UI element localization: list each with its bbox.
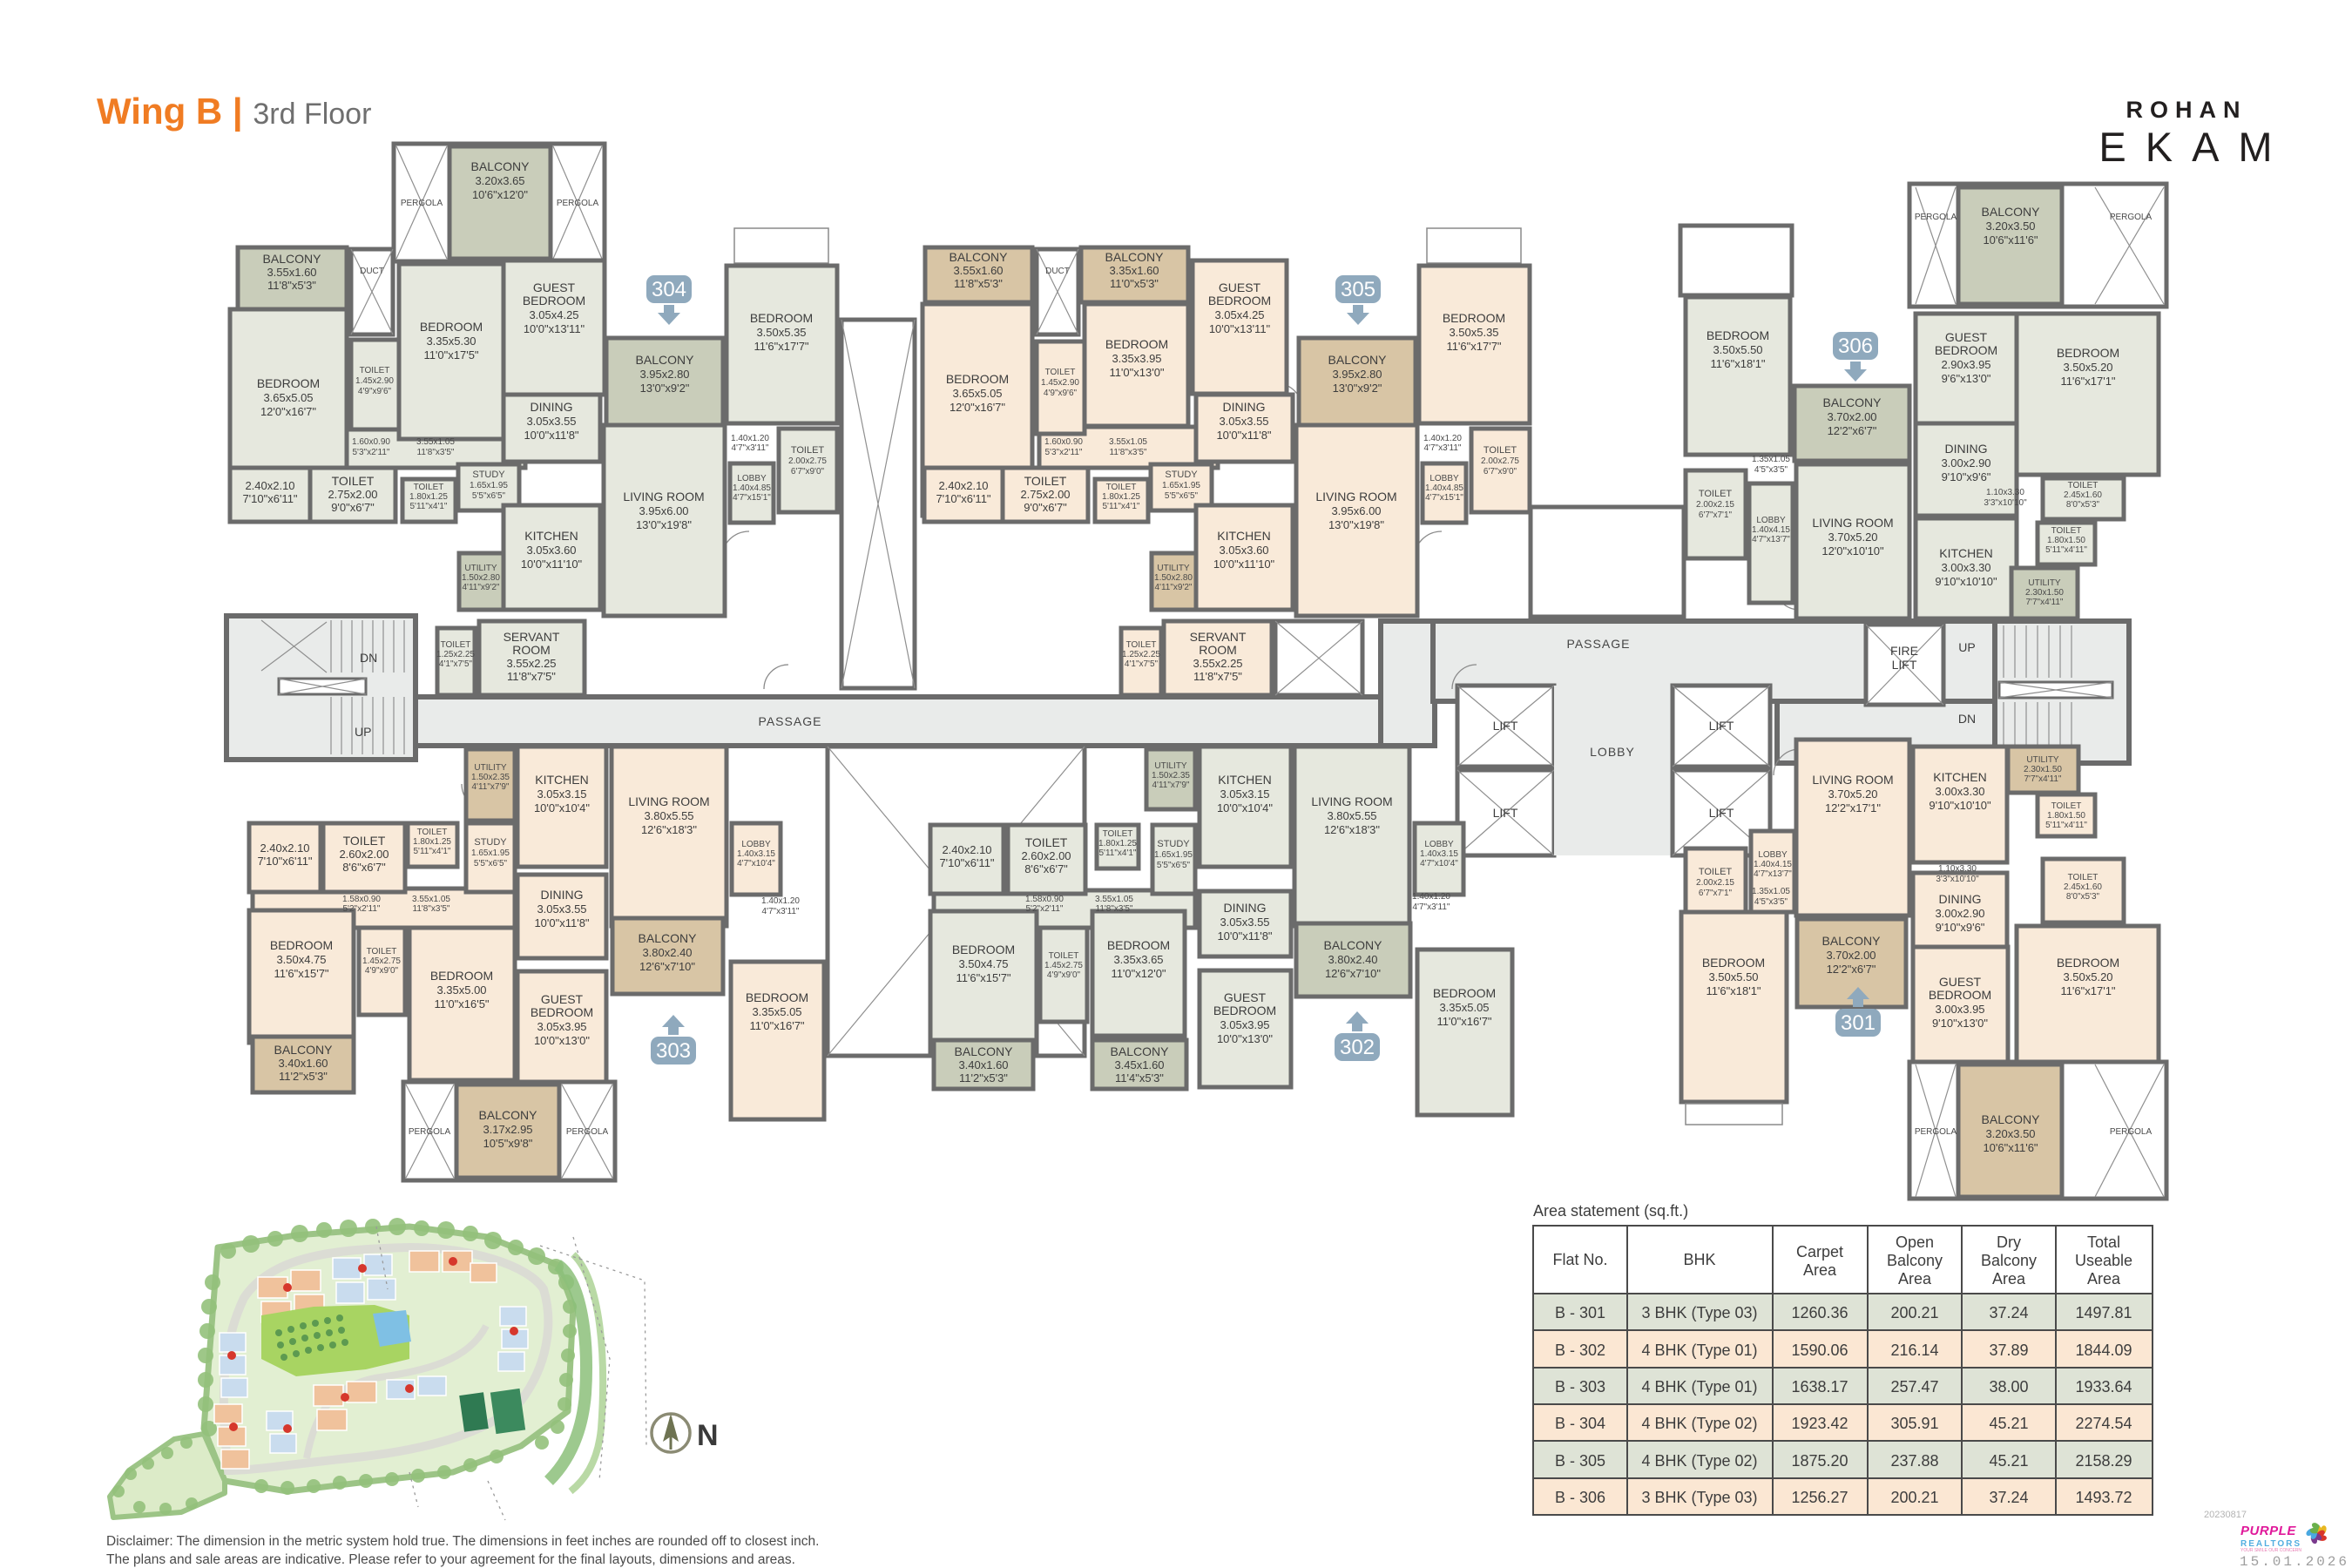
- svg-text:LIVING ROOM: LIVING ROOM: [628, 794, 709, 808]
- svg-text:5'3"x2'11": 5'3"x2'11": [353, 448, 390, 457]
- svg-text:5'2"x2'11": 5'2"x2'11": [343, 904, 381, 914]
- svg-text:5'11"x4'11": 5'11"x4'11": [2045, 821, 2087, 830]
- svg-text:1.25x2.25: 1.25x2.25: [1122, 650, 1160, 659]
- svg-text:PASSAGE: PASSAGE: [1567, 637, 1631, 651]
- svg-text:4 BHK (Type 01): 4 BHK (Type 01): [1641, 1342, 1757, 1359]
- svg-text:3.55x1.05: 3.55x1.05: [1095, 895, 1133, 904]
- svg-text:Total: Total: [2087, 1233, 2120, 1251]
- svg-text:37.89: 37.89: [1989, 1342, 2028, 1359]
- svg-text:11'2"x5'3": 11'2"x5'3": [959, 1071, 1008, 1085]
- svg-text:BALCONY: BALCONY: [1324, 938, 1383, 952]
- svg-text:1.65x1.95: 1.65x1.95: [1162, 481, 1200, 490]
- svg-text:37.24: 37.24: [1989, 1489, 2028, 1506]
- svg-text:BEDROOM: BEDROOM: [1929, 988, 1991, 1002]
- svg-text:7'10"x6'11": 7'10"x6'11": [242, 492, 297, 505]
- svg-text:11'6"x15'7": 11'6"x15'7": [274, 967, 328, 980]
- svg-text:12'2"x17'1": 12'2"x17'1": [1825, 801, 1881, 814]
- svg-text:UTILITY: UTILITY: [1154, 761, 1187, 771]
- svg-text:12'0"x16'7": 12'0"x16'7": [260, 405, 316, 418]
- svg-text:BEDROOM: BEDROOM: [420, 320, 483, 334]
- svg-text:PERGOLA: PERGOLA: [2110, 1127, 2153, 1137]
- svg-text:LOBBY: LOBBY: [737, 474, 767, 483]
- svg-text:STUDY: STUDY: [474, 837, 507, 848]
- svg-text:3.95x6.00: 3.95x6.00: [639, 504, 688, 517]
- svg-text:10'0"x10'4": 10'0"x10'4": [534, 801, 590, 814]
- svg-text:BEDROOM: BEDROOM: [2057, 956, 2119, 970]
- svg-text:LOBBY: LOBBY: [1424, 840, 1454, 849]
- svg-text:1.40x1.20: 1.40x1.20: [1412, 892, 1450, 902]
- svg-text:BALCONY: BALCONY: [263, 252, 322, 266]
- svg-text:BEDROOM: BEDROOM: [2057, 346, 2119, 360]
- svg-text:10'0"x11'8": 10'0"x11'8": [1217, 929, 1272, 943]
- svg-text:UP: UP: [355, 725, 371, 739]
- svg-text:3.50x5.35: 3.50x5.35: [1449, 326, 1498, 339]
- svg-text:Open: Open: [1896, 1233, 1934, 1251]
- svg-text:3.70x2.00: 3.70x2.00: [1826, 949, 1876, 962]
- svg-text:3.00x2.90: 3.00x2.90: [1935, 907, 1984, 920]
- svg-text:20230817: 20230817: [2204, 1510, 2247, 1520]
- svg-text:2.00x2.15: 2.00x2.15: [1696, 500, 1734, 510]
- svg-text:10'0"x11'8": 10'0"x11'8": [534, 916, 589, 929]
- svg-text:3.00x3.95: 3.00x3.95: [1935, 1003, 1984, 1016]
- svg-text:13'0"x19'8": 13'0"x19'8": [1328, 518, 1384, 531]
- svg-text:4'1"x7'5": 4'1"x7'5": [1125, 659, 1159, 669]
- svg-text:2.40x2.10: 2.40x2.10: [260, 841, 309, 855]
- svg-text:3.65x5.05: 3.65x5.05: [263, 391, 313, 404]
- svg-text:ROHAN: ROHAN: [2126, 97, 2247, 123]
- svg-text:TOILET: TOILET: [343, 834, 386, 848]
- svg-text:10'0"x10'4": 10'0"x10'4": [1217, 801, 1273, 814]
- svg-text:11'8"x3'5": 11'8"x3'5": [1110, 448, 1147, 457]
- svg-text:LIVING ROOM: LIVING ROOM: [623, 490, 704, 504]
- svg-text:10'5"x9'8": 10'5"x9'8": [483, 1137, 533, 1150]
- svg-text:2.60x2.00: 2.60x2.00: [1021, 849, 1071, 862]
- svg-text:BEDROOM: BEDROOM: [946, 372, 1009, 386]
- svg-text:PERGOLA: PERGOLA: [1915, 213, 1957, 222]
- svg-text:10'0"x13'11": 10'0"x13'11": [1209, 322, 1271, 335]
- svg-text:2.40x2.10: 2.40x2.10: [942, 843, 991, 856]
- svg-text:1875.20: 1875.20: [1791, 1452, 1848, 1470]
- svg-text:LIFT: LIFT: [1892, 658, 1917, 672]
- svg-text:3'3"x10'10": 3'3"x10'10": [1984, 498, 2027, 508]
- svg-text:13'0"x9'2": 13'0"x9'2": [640, 382, 690, 395]
- svg-text:3.00x2.90: 3.00x2.90: [1941, 456, 1990, 470]
- svg-text:TOILET: TOILET: [2068, 481, 2099, 490]
- svg-text:11'0"x12'0": 11'0"x12'0": [1111, 967, 1166, 980]
- svg-text:1.40x1.20: 1.40x1.20: [761, 896, 800, 906]
- svg-text:3.70x5.20: 3.70x5.20: [1828, 531, 1877, 544]
- svg-text:4'7"x10'4": 4'7"x10'4": [737, 859, 775, 868]
- svg-text:1.50x2.35: 1.50x2.35: [1152, 771, 1190, 781]
- svg-text:2.40x2.10: 2.40x2.10: [938, 479, 988, 492]
- svg-text:305.91: 305.91: [1890, 1415, 1938, 1432]
- svg-text:4'7"x15'1": 4'7"x15'1": [733, 493, 771, 503]
- svg-text:UTILITY: UTILITY: [2026, 755, 2059, 765]
- svg-text:11'2"x5'3": 11'2"x5'3": [279, 1070, 328, 1083]
- svg-text:4'9"x9'0": 4'9"x9'0": [365, 966, 399, 976]
- svg-text:1844.09: 1844.09: [2075, 1342, 2132, 1359]
- svg-text:1.25x2.25: 1.25x2.25: [436, 650, 475, 659]
- svg-text:BEDROOM: BEDROOM: [750, 311, 813, 325]
- svg-text:3.35x3.65: 3.35x3.65: [1113, 953, 1163, 966]
- svg-text:10'0"x11'10": 10'0"x11'10": [1213, 558, 1275, 571]
- svg-text:Dry: Dry: [1997, 1233, 2021, 1251]
- svg-text:1.35x1.05: 1.35x1.05: [1752, 887, 1790, 896]
- svg-text:3.00x3.30: 3.00x3.30: [1941, 561, 1990, 574]
- svg-text:BALCONY: BALCONY: [955, 1044, 1014, 1058]
- svg-text:TOILET: TOILET: [791, 445, 825, 456]
- svg-text:4'9"x9'6": 4'9"x9'6": [358, 387, 392, 396]
- svg-text:TOILET: TOILET: [1103, 829, 1133, 839]
- svg-text:1.58x0.90: 1.58x0.90: [342, 895, 381, 904]
- svg-text:2158.29: 2158.29: [2075, 1452, 2132, 1470]
- svg-text:12'2"x6'7": 12'2"x6'7": [1827, 963, 1876, 976]
- svg-text:BEDROOM: BEDROOM: [531, 1005, 593, 1019]
- svg-text:BALCONY: BALCONY: [1982, 205, 2041, 219]
- svg-text:11'6"x17'1": 11'6"x17'1": [2060, 375, 2115, 388]
- svg-text:STUDY: STUDY: [1157, 839, 1190, 849]
- svg-text:B - 303: B - 303: [1555, 1378, 1605, 1396]
- svg-text:3.00x3.30: 3.00x3.30: [1935, 785, 1984, 798]
- svg-text:2.00x2.15: 2.00x2.15: [1696, 878, 1734, 888]
- svg-text:3.55x1.05: 3.55x1.05: [416, 437, 455, 447]
- svg-text:1638.17: 1638.17: [1791, 1378, 1848, 1396]
- svg-text:2.45x1.60: 2.45x1.60: [2064, 882, 2102, 892]
- svg-text:1590.06: 1590.06: [1791, 1342, 1848, 1359]
- svg-text:3.95x6.00: 3.95x6.00: [1331, 504, 1381, 517]
- svg-text:6'7"x9'0": 6'7"x9'0": [791, 467, 825, 476]
- svg-text:1.10x3.30: 1.10x3.30: [1986, 488, 2024, 497]
- svg-text:8'6"x6'7": 8'6"x6'7": [342, 861, 386, 874]
- svg-text:1.45x2.90: 1.45x2.90: [1041, 378, 1079, 388]
- svg-text:5'5"x6'5": 5'5"x6'5": [474, 859, 508, 868]
- svg-text:TOILET: TOILET: [360, 366, 390, 375]
- svg-text:1.80x1.25: 1.80x1.25: [409, 492, 448, 502]
- svg-text:DINING: DINING: [541, 888, 584, 902]
- svg-text:3.50x4.75: 3.50x4.75: [276, 953, 326, 966]
- svg-text:5'11"x4'1": 5'11"x4'1": [1099, 848, 1137, 858]
- svg-text:1.58x0.90: 1.58x0.90: [1025, 895, 1064, 904]
- svg-text:3.05x4.25: 3.05x4.25: [529, 308, 578, 321]
- svg-text:11'8"x3'5": 11'8"x3'5": [413, 904, 450, 914]
- svg-text:2.45x1.60: 2.45x1.60: [2064, 490, 2102, 500]
- svg-text:3.35x5.05: 3.35x5.05: [752, 1005, 801, 1018]
- svg-text:STUDY: STUDY: [472, 470, 505, 480]
- svg-text:303: 303: [656, 1039, 691, 1063]
- svg-text:UP: UP: [1958, 640, 1975, 654]
- svg-text:3.50x5.50: 3.50x5.50: [1708, 970, 1758, 983]
- svg-text:1.40x1.20: 1.40x1.20: [731, 434, 769, 443]
- svg-text:DN: DN: [1958, 712, 1976, 726]
- svg-text:3.80x5.55: 3.80x5.55: [1327, 809, 1376, 822]
- svg-text:DN: DN: [360, 651, 377, 665]
- svg-text:LIVING ROOM: LIVING ROOM: [1812, 516, 1893, 530]
- svg-text:3.40x1.60: 3.40x1.60: [958, 1058, 1008, 1071]
- svg-text:11'8"x7'5": 11'8"x7'5": [507, 670, 556, 683]
- svg-text:DINING: DINING: [1945, 442, 1988, 456]
- svg-text:3'3"x10'10": 3'3"x10'10": [1936, 875, 1979, 884]
- svg-text:LOBBY: LOBBY: [1758, 850, 1788, 860]
- svg-text:SERVANT: SERVANT: [1190, 630, 1247, 644]
- svg-text:7'10"x6'11": 7'10"x6'11": [936, 492, 990, 505]
- svg-text:2.60x2.00: 2.60x2.00: [339, 848, 389, 861]
- svg-text:Area: Area: [1992, 1270, 2026, 1288]
- svg-text:BALCONY: BALCONY: [1822, 934, 1882, 948]
- svg-text:1.10x3.30: 1.10x3.30: [1938, 864, 1977, 874]
- svg-text:12'2"x6'7": 12'2"x6'7": [1828, 424, 1877, 437]
- svg-text:4'11"x9'2": 4'11"x9'2": [463, 583, 500, 592]
- svg-text:1.80x1.50: 1.80x1.50: [2047, 536, 2085, 545]
- svg-text:8'0"x5'3": 8'0"x5'3": [2066, 500, 2100, 510]
- svg-text:3.35x5.00: 3.35x5.00: [436, 983, 486, 997]
- svg-text:BALCONY: BALCONY: [1328, 353, 1388, 367]
- svg-text:8'6"x6'7": 8'6"x6'7": [1024, 862, 1068, 875]
- svg-text:PERGOLA: PERGOLA: [409, 1127, 451, 1137]
- svg-text:KITCHEN: KITCHEN: [1217, 529, 1270, 543]
- svg-text:DINING: DINING: [1223, 400, 1266, 414]
- svg-text:Carpet: Carpet: [1796, 1243, 1843, 1260]
- svg-text:1.40x1.20: 1.40x1.20: [1423, 434, 1462, 443]
- svg-text:3.17x2.95: 3.17x2.95: [483, 1123, 532, 1136]
- svg-text:12'0"x10'10": 12'0"x10'10": [1821, 544, 1884, 558]
- svg-text:TOILET: TOILET: [1049, 951, 1079, 961]
- svg-text:UTILITY: UTILITY: [1157, 564, 1190, 573]
- svg-text:4 BHK (Type 02): 4 BHK (Type 02): [1641, 1452, 1757, 1470]
- svg-text:PASSAGE: PASSAGE: [759, 714, 822, 728]
- svg-text:UTILITY: UTILITY: [2028, 578, 2061, 588]
- svg-text:5'3"x2'11": 5'3"x2'11": [1045, 448, 1083, 457]
- svg-text:11'0"x16'7": 11'0"x16'7": [1436, 1015, 1491, 1028]
- svg-text:Flat No.: Flat No.: [1552, 1251, 1607, 1268]
- svg-text:UTILITY: UTILITY: [474, 763, 507, 773]
- svg-text:LOBBY: LOBBY: [1429, 474, 1459, 483]
- svg-text:TOILET: TOILET: [1126, 640, 1157, 650]
- svg-text:12'6"x18'3": 12'6"x18'3": [641, 823, 697, 836]
- svg-text:3 BHK (Type 03): 3 BHK (Type 03): [1641, 1304, 1757, 1321]
- svg-text:LOBBY: LOBBY: [1756, 516, 1786, 525]
- svg-text:10'0"x11'8": 10'0"x11'8": [524, 429, 578, 442]
- svg-text:ROOM: ROOM: [512, 643, 551, 657]
- svg-text:BEDROOM: BEDROOM: [1433, 986, 1496, 1000]
- svg-text:2274.54: 2274.54: [2075, 1415, 2132, 1432]
- svg-text:11'8"x3'5": 11'8"x3'5": [417, 448, 455, 457]
- svg-text:5'11"x4'11": 5'11"x4'11": [2045, 545, 2087, 555]
- svg-text:PERGOLA: PERGOLA: [1915, 1127, 1957, 1137]
- svg-text:TOILET: TOILET: [2068, 873, 2099, 882]
- svg-text:11'4"x5'3": 11'4"x5'3": [1115, 1071, 1164, 1085]
- svg-text:1.45x2.90: 1.45x2.90: [355, 376, 394, 386]
- svg-text:1.80x1.25: 1.80x1.25: [1102, 492, 1140, 502]
- svg-text:1.80x1.25: 1.80x1.25: [413, 837, 451, 847]
- svg-text:11'8"x3'5": 11'8"x3'5": [1096, 904, 1133, 914]
- svg-text:4'9"x9'6": 4'9"x9'6": [1044, 389, 1078, 398]
- svg-text:3.50x5.20: 3.50x5.20: [2063, 970, 2112, 983]
- svg-text:11'8"x5'3": 11'8"x5'3": [954, 277, 1003, 290]
- svg-text:2.00x2.75: 2.00x2.75: [1481, 456, 1519, 466]
- svg-text:5'5"x6'5": 5'5"x6'5": [1165, 491, 1199, 501]
- svg-text:BALCONY: BALCONY: [1823, 395, 1882, 409]
- svg-text:13'0"x19'8": 13'0"x19'8": [636, 518, 692, 531]
- svg-text:KITCHEN: KITCHEN: [1218, 773, 1271, 787]
- svg-text:BALCONY: BALCONY: [950, 250, 1009, 264]
- svg-text:Area: Area: [1803, 1261, 1837, 1279]
- svg-text:4'7"x10'4": 4'7"x10'4": [1420, 859, 1458, 868]
- svg-text:1.60x0.90: 1.60x0.90: [1044, 437, 1083, 447]
- svg-text:Useable: Useable: [2075, 1252, 2132, 1269]
- svg-text:5'11"x4'1": 5'11"x4'1": [410, 502, 448, 511]
- svg-text:1.40x3.15: 1.40x3.15: [1420, 849, 1458, 859]
- svg-text:3.35x5.05: 3.35x5.05: [1439, 1001, 1489, 1014]
- svg-text:10'0"x11'10": 10'0"x11'10": [521, 558, 583, 571]
- svg-text:BEDROOM: BEDROOM: [952, 943, 1015, 956]
- svg-text:13'0"x9'2": 13'0"x9'2": [1333, 382, 1382, 395]
- svg-text:3.50x4.75: 3.50x4.75: [958, 957, 1008, 970]
- svg-text:11'8"x7'5": 11'8"x7'5": [1193, 670, 1242, 683]
- svg-text:LIFT: LIFT: [1709, 806, 1734, 820]
- svg-text:9'10"x13'0": 9'10"x13'0": [1932, 1017, 1988, 1030]
- svg-text:LIFT: LIFT: [1493, 806, 1518, 820]
- svg-text:3.55x2.25: 3.55x2.25: [1193, 657, 1242, 670]
- svg-text:3.35x1.60: 3.35x1.60: [1109, 264, 1159, 277]
- svg-text:UTILITY: UTILITY: [464, 564, 497, 573]
- svg-text:BEDROOM: BEDROOM: [430, 969, 493, 983]
- svg-text:15.01.2026: 15.01.2026: [2240, 1554, 2349, 1568]
- svg-text:LIVING ROOM: LIVING ROOM: [1315, 490, 1396, 504]
- svg-text:BALCONY: BALCONY: [639, 931, 698, 945]
- svg-text:304: 304: [652, 278, 686, 301]
- svg-text:3.55x1.60: 3.55x1.60: [267, 266, 316, 279]
- svg-text:4'11"x9'2": 4'11"x9'2": [1155, 583, 1193, 592]
- svg-text:1.65x1.95: 1.65x1.95: [470, 481, 508, 490]
- svg-text:PERGOLA: PERGOLA: [401, 199, 443, 208]
- svg-text:1.50x2.80: 1.50x2.80: [1154, 573, 1193, 583]
- svg-text:2.75x2.00: 2.75x2.00: [328, 488, 377, 501]
- svg-text:5'2"x2'11": 5'2"x2'11": [1026, 904, 1064, 914]
- svg-text:TOILET: TOILET: [2051, 526, 2082, 536]
- svg-text:11'6"x17'1": 11'6"x17'1": [2060, 984, 2115, 997]
- svg-text:3.80x5.55: 3.80x5.55: [644, 809, 693, 822]
- svg-text:3.05x3.55: 3.05x3.55: [537, 902, 586, 916]
- svg-text:1.50x2.35: 1.50x2.35: [471, 773, 510, 782]
- svg-text:237.88: 237.88: [1890, 1452, 1938, 1470]
- svg-text:3.70x5.20: 3.70x5.20: [1828, 787, 1877, 801]
- svg-text:4'7"x13'7": 4'7"x13'7": [1752, 535, 1790, 544]
- svg-text:DINING: DINING: [1939, 892, 1982, 906]
- svg-text:306: 306: [1838, 335, 1873, 358]
- svg-text:YOUR SMILE OUR CONCERN: YOUR SMILE OUR CONCERN: [2240, 1548, 2301, 1553]
- svg-text:3.95x2.80: 3.95x2.80: [1332, 368, 1382, 381]
- svg-text:1256.27: 1256.27: [1791, 1489, 1848, 1506]
- svg-text:BEDROOM: BEDROOM: [1702, 956, 1765, 970]
- svg-text:3.35x3.95: 3.35x3.95: [1112, 352, 1161, 365]
- svg-text:Wing B | 3rd Floor: Wing B | 3rd Floor: [97, 91, 371, 132]
- svg-text:Balcony: Balcony: [1887, 1252, 1943, 1269]
- svg-text:3.55x1.05: 3.55x1.05: [1109, 437, 1147, 447]
- svg-text:1.40x4.15: 1.40x4.15: [1754, 860, 1792, 869]
- svg-text:LIFT: LIFT: [1493, 719, 1518, 733]
- svg-text:Balcony: Balcony: [1981, 1252, 2037, 1269]
- svg-text:216.14: 216.14: [1890, 1342, 1938, 1359]
- svg-text:DUCT: DUCT: [360, 267, 384, 276]
- svg-text:1.80x1.50: 1.80x1.50: [2047, 811, 2085, 821]
- svg-text:9'10"x9'6": 9'10"x9'6": [1942, 470, 1991, 483]
- svg-text:3.70x2.00: 3.70x2.00: [1827, 410, 1876, 423]
- svg-text:BEDROOM: BEDROOM: [1105, 337, 1168, 351]
- svg-text:12'6"x7'10": 12'6"x7'10": [1325, 967, 1381, 980]
- svg-text:BHK: BHK: [1683, 1251, 1715, 1268]
- svg-text:3.05x3.55: 3.05x3.55: [1220, 916, 1269, 929]
- svg-text:4'7"x3'11": 4'7"x3'11": [1424, 443, 1462, 453]
- svg-text:BALCONY: BALCONY: [1105, 250, 1165, 264]
- svg-text:LOBBY: LOBBY: [741, 840, 771, 849]
- svg-text:10'0"x11'8": 10'0"x11'8": [1216, 429, 1271, 442]
- svg-text:2.75x2.00: 2.75x2.00: [1020, 488, 1070, 501]
- svg-text:Disclaimer: The dimension in t: Disclaimer: The dimension in the metric …: [106, 1534, 819, 1549]
- svg-text:12'6"x18'3": 12'6"x18'3": [1324, 823, 1380, 836]
- svg-text:BEDROOM: BEDROOM: [270, 938, 333, 952]
- svg-text:45.21: 45.21: [1989, 1415, 2028, 1432]
- svg-text:GUEST: GUEST: [1945, 330, 1988, 344]
- svg-text:3.05x3.60: 3.05x3.60: [526, 544, 576, 557]
- svg-text:3.20x3.50: 3.20x3.50: [1985, 1127, 2035, 1140]
- svg-text:3.20x3.50: 3.20x3.50: [1985, 220, 2035, 233]
- svg-text:301: 301: [1841, 1011, 1876, 1035]
- svg-text:9'0"x6'7": 9'0"x6'7": [1024, 501, 1067, 514]
- svg-text:4'7"x13'7": 4'7"x13'7": [1754, 869, 1792, 879]
- svg-text:GUEST: GUEST: [1219, 280, 1261, 294]
- svg-text:Area: Area: [2087, 1270, 2121, 1288]
- svg-text:KITCHEN: KITCHEN: [524, 529, 578, 543]
- svg-text:3.35x5.30: 3.35x5.30: [426, 335, 476, 348]
- svg-text:3.65x5.05: 3.65x5.05: [952, 387, 1002, 400]
- svg-text:BALCONY: BALCONY: [1982, 1112, 2041, 1126]
- svg-text:11'6"x18'1": 11'6"x18'1": [1706, 984, 1761, 997]
- svg-text:4'1"x7'5": 4'1"x7'5": [439, 659, 473, 669]
- svg-text:11'6"x15'7": 11'6"x15'7": [956, 971, 1010, 984]
- svg-text:3.20x3.65: 3.20x3.65: [475, 174, 524, 187]
- svg-text:6'7"x9'0": 6'7"x9'0": [1484, 467, 1517, 476]
- svg-text:3.05x3.15: 3.05x3.15: [1220, 787, 1269, 801]
- svg-text:3.05x4.25: 3.05x4.25: [1214, 308, 1264, 321]
- svg-text:1923.42: 1923.42: [1791, 1415, 1848, 1432]
- svg-text:PERGOLA: PERGOLA: [566, 1127, 609, 1137]
- svg-text:4'5"x3'5": 4'5"x3'5": [1754, 465, 1788, 475]
- svg-text:BEDROOM: BEDROOM: [1935, 343, 1997, 357]
- svg-text:3.55x1.05: 3.55x1.05: [412, 895, 450, 904]
- svg-text:GUEST: GUEST: [1939, 975, 1982, 989]
- svg-text:3 BHK (Type 03): 3 BHK (Type 03): [1641, 1489, 1757, 1506]
- svg-text:3.80x2.40: 3.80x2.40: [642, 946, 692, 959]
- svg-text:BEDROOM: BEDROOM: [523, 294, 585, 308]
- svg-text:12'6"x7'10": 12'6"x7'10": [639, 960, 695, 973]
- svg-text:1.35x1.05: 1.35x1.05: [1752, 455, 1790, 464]
- svg-text:1.60x0.90: 1.60x0.90: [352, 437, 390, 447]
- svg-text:3.05x3.95: 3.05x3.95: [537, 1020, 586, 1033]
- svg-text:10'6"x11'6": 10'6"x11'6": [1983, 1141, 2038, 1154]
- svg-text:LOBBY: LOBBY: [1590, 745, 1635, 759]
- svg-text:4'9"x9'0": 4'9"x9'0": [1047, 970, 1081, 980]
- svg-text:4'7"x15'1": 4'7"x15'1": [1425, 493, 1463, 503]
- svg-text:302: 302: [1340, 1036, 1375, 1059]
- svg-text:7'10"x6'11": 7'10"x6'11": [257, 855, 312, 868]
- svg-text:1497.81: 1497.81: [2075, 1304, 2132, 1321]
- svg-text:ROOM: ROOM: [1199, 643, 1237, 657]
- svg-text:9'6"x13'0": 9'6"x13'0": [1942, 372, 1991, 385]
- svg-text:DUCT: DUCT: [1045, 267, 1070, 276]
- svg-text:1.40x4.85: 1.40x4.85: [733, 483, 771, 493]
- svg-text:10'6"x11'6": 10'6"x11'6": [1983, 233, 2038, 247]
- svg-text:3.50x5.50: 3.50x5.50: [1713, 343, 1762, 356]
